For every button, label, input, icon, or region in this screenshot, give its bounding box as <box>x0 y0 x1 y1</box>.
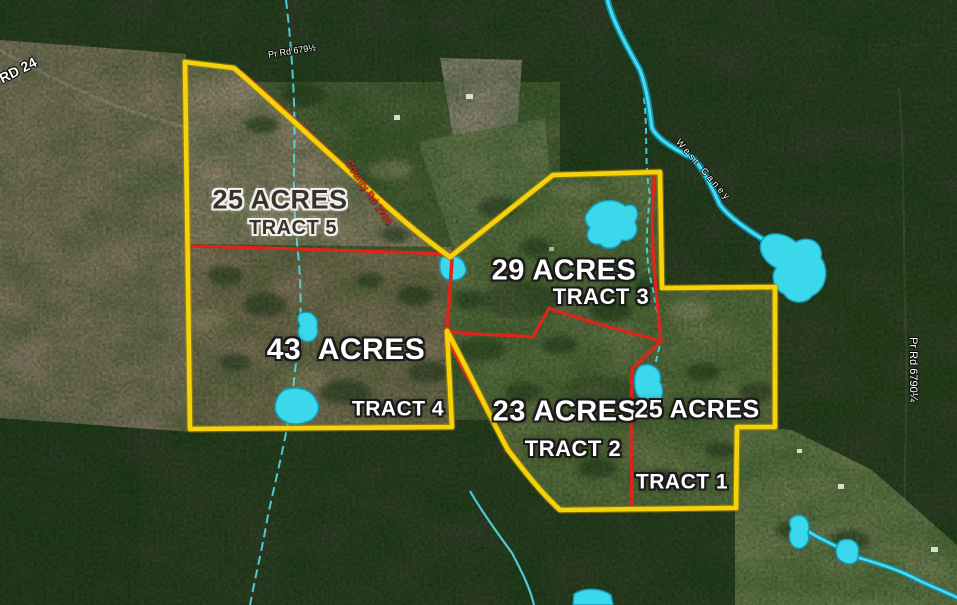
pond-tract4-lower <box>275 388 318 424</box>
tract5-name-label: TRACT 5 <box>249 218 337 238</box>
tract3-acres-label: 29 ACRES <box>492 257 637 286</box>
tract5-acres-label: 25 ACRES <box>212 187 347 214</box>
tract3-name-label: TRACT 3 <box>553 286 649 308</box>
pond-bottom-right-b <box>836 539 858 564</box>
aerial-imagery <box>0 0 957 605</box>
aerial-parcel-map: 25 ACRES TRACT 5 29 ACRES TRACT 3 43 ACR… <box>0 0 957 605</box>
tract4-acres-label: 43 ACRES <box>267 335 425 365</box>
pr-rd-6790-road-label: Pr Rd 6790¼ <box>907 337 918 402</box>
terrain-speckle-overlay <box>0 0 957 605</box>
tract1-name-label: TRACT 1 <box>636 472 728 493</box>
tract4-name-label: TRACT 4 <box>352 399 444 420</box>
tract2-name-label: TRACT 2 <box>525 438 621 460</box>
tract2-acres-label: 23 ACRES <box>493 398 638 427</box>
tract1-acres-label: 25 ACRES <box>634 398 759 423</box>
pond-bottom-right-a <box>789 515 808 548</box>
